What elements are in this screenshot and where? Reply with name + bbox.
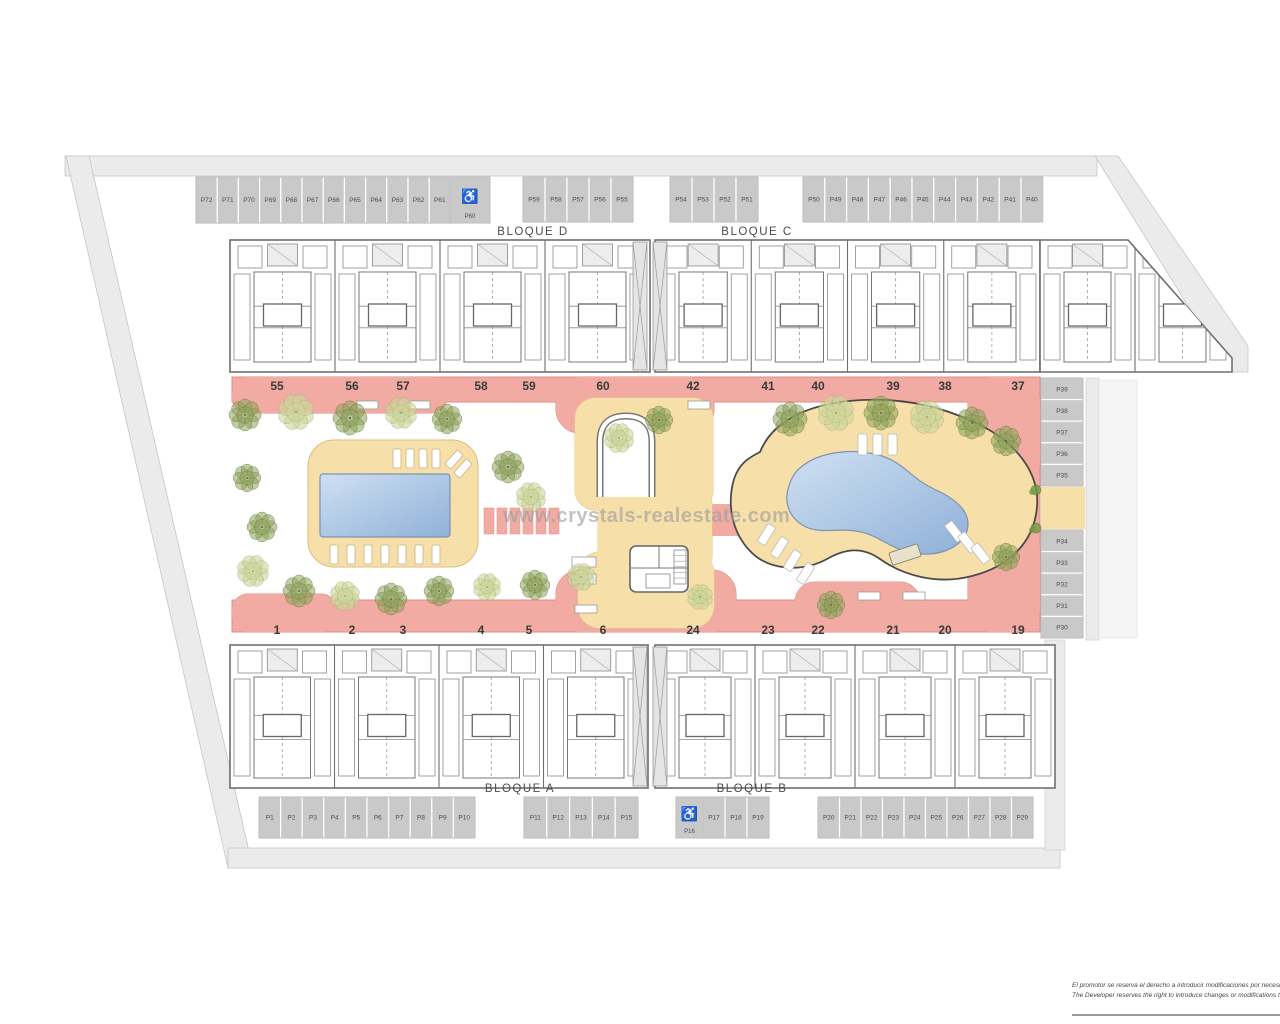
parking-stall-P29: P29 — [1012, 797, 1034, 838]
unit-number-23: 23 — [761, 623, 775, 637]
sun-lounger — [347, 545, 355, 564]
parking-stall-P6: P6 — [367, 797, 389, 838]
svg-text:P43: P43 — [961, 197, 973, 204]
svg-text:P37: P37 — [1056, 430, 1068, 437]
parking-stall-P38: P38 — [1041, 400, 1083, 422]
svg-text:P8: P8 — [417, 815, 425, 822]
svg-text:P15: P15 — [621, 815, 633, 822]
svg-text:P38: P38 — [1056, 408, 1068, 415]
svg-text:P70: P70 — [243, 197, 255, 204]
svg-text:P62: P62 — [413, 197, 425, 204]
svg-text:P60: P60 — [465, 214, 476, 220]
svg-text:P45: P45 — [917, 197, 929, 204]
unit-number-4: 4 — [478, 623, 485, 637]
parking-stall-P25: P25 — [926, 797, 948, 838]
left-pool-deck — [308, 440, 478, 567]
tree — [492, 451, 524, 483]
parking-stall-P5: P5 — [345, 797, 367, 838]
parking-stall-P71: P71 — [217, 177, 238, 223]
parking-stall-P56: P56 — [589, 177, 611, 222]
svg-text:P36: P36 — [1056, 451, 1068, 458]
sun-lounger — [406, 449, 414, 468]
svg-text:P10: P10 — [458, 815, 470, 822]
svg-text:P66: P66 — [328, 197, 340, 204]
unit-number-6: 6 — [600, 623, 607, 637]
sun-lounger — [419, 449, 427, 468]
svg-text:P17: P17 — [708, 815, 720, 822]
wheelchair-icon: ♿ — [681, 806, 698, 823]
tree — [474, 574, 501, 601]
svg-text:P42: P42 — [983, 197, 995, 204]
parking-stall-P32: P32 — [1041, 573, 1083, 595]
parking-stall-P18: P18 — [725, 797, 747, 838]
parking-stall-P67: P67 — [302, 177, 323, 223]
road-bottom — [228, 848, 1060, 868]
parking-area-bottom-acc: ♿P16 — [676, 797, 703, 838]
unit-number-38: 38 — [938, 379, 952, 393]
parking-stall-P2: P2 — [281, 797, 303, 838]
svg-text:P53: P53 — [697, 197, 709, 204]
unit-number-22: 22 — [811, 623, 825, 637]
svg-text:P48: P48 — [852, 197, 864, 204]
svg-text:P56: P56 — [594, 197, 606, 204]
tree — [283, 575, 315, 607]
svg-text:P71: P71 — [222, 197, 234, 204]
svg-text:P35: P35 — [1056, 473, 1068, 480]
unit-number-5: 5 — [526, 623, 533, 637]
sun-lounger — [330, 545, 338, 564]
parking-stall-P24: P24 — [904, 797, 926, 838]
svg-text:P19: P19 — [752, 815, 764, 822]
svg-text:P16: P16 — [684, 829, 695, 835]
block-label: BLOQUE D — [497, 226, 568, 238]
tree — [956, 407, 988, 439]
block-label: BLOQUE B — [717, 783, 788, 795]
svg-text:P64: P64 — [370, 197, 382, 204]
svg-text:P63: P63 — [392, 197, 404, 204]
svg-text:P14: P14 — [598, 815, 610, 822]
svg-text:P4: P4 — [331, 815, 339, 822]
parking-area-right-lower: P34P33P32P31P30 — [1041, 530, 1083, 638]
tree — [229, 399, 261, 431]
parking-stall-P8: P8 — [410, 797, 432, 838]
walkway-bulge-fill — [232, 594, 337, 632]
parking-stall-P44: P44 — [934, 177, 956, 222]
parking-stall-P50: P50 — [803, 177, 825, 222]
parking-stall-P14: P14 — [592, 797, 615, 838]
unit-number-55: 55 — [270, 379, 284, 393]
svg-text:P30: P30 — [1056, 625, 1068, 632]
stair-passage — [633, 242, 647, 370]
tree — [247, 512, 277, 542]
parking-stall-P3: P3 — [302, 797, 324, 838]
svg-text:P31: P31 — [1056, 603, 1068, 610]
parking-stall-P20: P20 — [818, 797, 840, 838]
tree — [333, 401, 367, 435]
svg-text:P57: P57 — [572, 197, 584, 204]
tree — [773, 402, 807, 436]
road-right-outer — [1099, 380, 1137, 638]
parking-stall-P26: P26 — [947, 797, 969, 838]
parking-stall-P9: P9 — [432, 797, 454, 838]
svg-text:P39: P39 — [1056, 386, 1068, 393]
tree — [432, 404, 462, 434]
block-label: BLOQUE C — [721, 226, 792, 238]
parking-area-top-mid-d: P59P58P57P56P55 — [523, 177, 633, 222]
unit-number-56: 56 — [345, 379, 359, 393]
parking-stall-P48: P48 — [847, 177, 869, 222]
parking-area-bottom-left: P1P2P3P4P5P6P7P8P9P10 — [259, 797, 475, 838]
svg-text:P33: P33 — [1056, 560, 1068, 567]
block-label: BLOQUE A — [485, 783, 555, 795]
tree — [645, 406, 673, 434]
parking-stall-P15: P15 — [615, 797, 638, 838]
stair-passage — [653, 647, 667, 786]
tree — [991, 426, 1021, 456]
parking-stall-P13: P13 — [570, 797, 593, 838]
parking-stall-P35: P35 — [1041, 464, 1083, 486]
pool-house — [630, 546, 688, 592]
parking-stall-P21: P21 — [840, 797, 862, 838]
unit-number-37: 37 — [1011, 379, 1025, 393]
parking-stall-P7: P7 — [389, 797, 411, 838]
svg-text:P55: P55 — [616, 197, 628, 204]
unit-number-42: 42 — [686, 379, 700, 393]
sun-lounger — [432, 449, 440, 468]
building-bloque-a — [230, 645, 648, 788]
svg-text:P11: P11 — [530, 815, 541, 822]
parking-stall-P42: P42 — [977, 177, 999, 222]
building-bloque-c — [655, 240, 1040, 372]
svg-text:P52: P52 — [719, 197, 731, 204]
parking-stall-P16: ♿P16 — [676, 797, 703, 838]
parking-stall-P34: P34 — [1041, 530, 1083, 552]
building-bloque-d — [230, 240, 650, 372]
bench — [903, 592, 925, 600]
parking-stall-P43: P43 — [956, 177, 978, 222]
sun-lounger — [381, 545, 389, 564]
unit-number-40: 40 — [811, 379, 825, 393]
svg-text:P54: P54 — [675, 197, 687, 204]
disclaimer-rule — [1072, 1014, 1280, 1016]
svg-text:P20: P20 — [823, 815, 835, 822]
svg-text:P1: P1 — [266, 815, 274, 822]
parking-stall-P60: ♿P60 — [450, 177, 490, 223]
unit-number-2: 2 — [349, 623, 356, 637]
parking-stall-P22: P22 — [861, 797, 883, 838]
svg-text:P18: P18 — [730, 815, 742, 822]
svg-text:P44: P44 — [939, 197, 951, 204]
sun-lounger — [364, 545, 372, 564]
svg-text:P51: P51 — [741, 197, 753, 204]
tree — [424, 576, 454, 606]
bench — [858, 592, 880, 600]
unit-number-1: 1 — [274, 623, 281, 637]
parking-stall-P59: P59 — [523, 177, 545, 222]
svg-text:P34: P34 — [1056, 538, 1068, 545]
parking-area-top-left: P72P71P70P69P68P67P66P65P64P63P62P61 — [196, 177, 450, 223]
crosswalk-stripe — [484, 508, 494, 534]
parking-stall-P57: P57 — [567, 177, 589, 222]
parking-stall-P17: P17 — [703, 797, 725, 838]
parking-stall-P23: P23 — [883, 797, 905, 838]
tree — [520, 570, 550, 600]
pool-left — [320, 474, 450, 537]
svg-text:P46: P46 — [895, 197, 907, 204]
svg-text:P59: P59 — [528, 197, 540, 204]
parking-stall-P11: P11 — [524, 797, 547, 838]
parking-stall-P54: P54 — [670, 177, 692, 222]
parking-area-top-left-acc: ♿P60 — [450, 177, 490, 223]
svg-text:P25: P25 — [930, 815, 942, 822]
sun-lounger — [873, 434, 882, 455]
svg-text:P49: P49 — [830, 197, 842, 204]
disclaimer-line-en: The Developer reserves the right to intr… — [1072, 991, 1280, 1001]
svg-text:P3: P3 — [309, 815, 317, 822]
parking-stall-P41: P41 — [999, 177, 1021, 222]
svg-text:P72: P72 — [201, 197, 213, 204]
tree — [992, 543, 1020, 571]
disclaimer-line-es: El promotor se reserva el derecho a intr… — [1072, 981, 1280, 991]
unit-number-21: 21 — [886, 623, 900, 637]
parking-stall-P68: P68 — [281, 177, 302, 223]
watermark: www.crystals-realestate.com — [503, 505, 773, 528]
parking-area-bottom-mid-b: P17P18P19 — [703, 797, 769, 838]
parking-stall-P31: P31 — [1041, 595, 1083, 617]
parking-path-connector — [1041, 487, 1085, 529]
unit-number-60: 60 — [596, 379, 610, 393]
disclaimer: El promotor se reserva el derecho a intr… — [1072, 981, 1280, 1016]
parking-area-right-upper: P39P38P37P36P35 — [1041, 378, 1083, 486]
svg-text:P41: P41 — [1004, 197, 1016, 204]
unit-number-58: 58 — [474, 379, 488, 393]
svg-text:P27: P27 — [973, 815, 985, 822]
svg-text:P29: P29 — [1016, 815, 1028, 822]
parking-stall-P69: P69 — [260, 177, 281, 223]
bench — [575, 605, 597, 613]
parking-stall-P4: P4 — [324, 797, 346, 838]
unit-number-24: 24 — [686, 623, 700, 637]
bench — [688, 401, 710, 409]
svg-text:P5: P5 — [352, 815, 360, 822]
svg-text:P24: P24 — [909, 815, 921, 822]
parking-stall-P52: P52 — [714, 177, 736, 222]
unit-number-57: 57 — [396, 379, 410, 393]
unit-number-20: 20 — [938, 623, 952, 637]
wheelchair-icon: ♿ — [461, 188, 478, 205]
tree — [817, 591, 845, 619]
svg-text:P22: P22 — [866, 815, 878, 822]
parking-stall-P62: P62 — [408, 177, 429, 223]
parking-stall-P61: P61 — [429, 177, 450, 223]
tree — [375, 583, 407, 615]
svg-text:P7: P7 — [395, 815, 403, 822]
svg-text:P9: P9 — [439, 815, 447, 822]
svg-text:P47: P47 — [874, 197, 886, 204]
parking-stall-P66: P66 — [323, 177, 344, 223]
parking-stall-P37: P37 — [1041, 421, 1083, 443]
parking-stall-P70: P70 — [238, 177, 259, 223]
parking-stall-P49: P49 — [825, 177, 847, 222]
tree — [238, 556, 269, 587]
parking-stall-P12: P12 — [547, 797, 570, 838]
svg-text:P26: P26 — [952, 815, 964, 822]
parking-stall-P47: P47 — [868, 177, 890, 222]
svg-text:P50: P50 — [808, 197, 820, 204]
road-top — [65, 156, 1097, 176]
site-plan-page: P72P71P70P69P68P67P66P65P64P63P62P61♿P60… — [0, 0, 1280, 1024]
parking-stall-P51: P51 — [736, 177, 758, 222]
road — [66, 156, 251, 868]
svg-text:P67: P67 — [307, 197, 319, 204]
svg-text:P69: P69 — [264, 197, 276, 204]
unit-number-39: 39 — [886, 379, 900, 393]
svg-text:P13: P13 — [575, 815, 587, 822]
parking-stall-P45: P45 — [912, 177, 934, 222]
parking-area-top-mid-c: P54P53P52P51 — [670, 177, 758, 222]
stair-passage — [653, 242, 667, 370]
parking-stall-P63: P63 — [387, 177, 408, 223]
parking-stall-P40: P40 — [1021, 177, 1043, 222]
svg-text:P23: P23 — [887, 815, 899, 822]
svg-text:P2: P2 — [287, 815, 295, 822]
parking-stall-P19: P19 — [747, 797, 769, 838]
parking-stall-P53: P53 — [692, 177, 714, 222]
svg-text:P58: P58 — [550, 197, 562, 204]
parking-stall-P72: P72 — [196, 177, 217, 223]
parking-stall-P30: P30 — [1041, 616, 1083, 638]
unit-number-19: 19 — [1011, 623, 1025, 637]
svg-text:P32: P32 — [1056, 582, 1068, 589]
svg-text:P12: P12 — [552, 815, 564, 822]
sun-lounger — [398, 545, 406, 564]
parking-stall-P64: P64 — [366, 177, 387, 223]
building-bloque-b — [655, 645, 1055, 788]
tree — [233, 464, 261, 492]
tree — [864, 396, 898, 430]
parking-area-bottom-right: P20P21P22P23P24P25P26P27P28P29 — [818, 797, 1033, 838]
sun-lounger — [415, 545, 423, 564]
parking-stall-P39: P39 — [1041, 378, 1083, 400]
sun-lounger — [858, 434, 867, 455]
svg-text:P28: P28 — [995, 815, 1007, 822]
svg-text:P65: P65 — [349, 197, 361, 204]
unit-number-41: 41 — [761, 379, 775, 393]
svg-text:P68: P68 — [286, 197, 298, 204]
parking-area-bottom-mid-a: P11P12P13P14P15 — [524, 797, 638, 838]
sun-lounger — [432, 545, 440, 564]
sun-lounger — [393, 449, 401, 468]
parking-stall-P10: P10 — [453, 797, 475, 838]
svg-text:P6: P6 — [374, 815, 382, 822]
parking-stall-P28: P28 — [990, 797, 1012, 838]
parking-stall-P33: P33 — [1041, 552, 1083, 574]
parking-stall-P1: P1 — [259, 797, 281, 838]
parking-stall-P65: P65 — [344, 177, 365, 223]
parking-stall-P36: P36 — [1041, 443, 1083, 465]
road-right — [1086, 378, 1099, 640]
svg-text:P21: P21 — [844, 815, 856, 822]
stair-passage — [633, 647, 647, 786]
parking-area-top-right: P50P49P48P47P46P45P44P43P42P41P40 — [803, 177, 1043, 222]
parking-stall-P55: P55 — [611, 177, 633, 222]
unit-number-59: 59 — [522, 379, 536, 393]
svg-text:P40: P40 — [1026, 197, 1038, 204]
parking-stall-P58: P58 — [545, 177, 567, 222]
parking-stall-P27: P27 — [969, 797, 991, 838]
unit-number-3: 3 — [400, 623, 407, 637]
parking-stall-P46: P46 — [890, 177, 912, 222]
sun-lounger — [888, 434, 897, 455]
svg-text:P61: P61 — [434, 197, 446, 204]
